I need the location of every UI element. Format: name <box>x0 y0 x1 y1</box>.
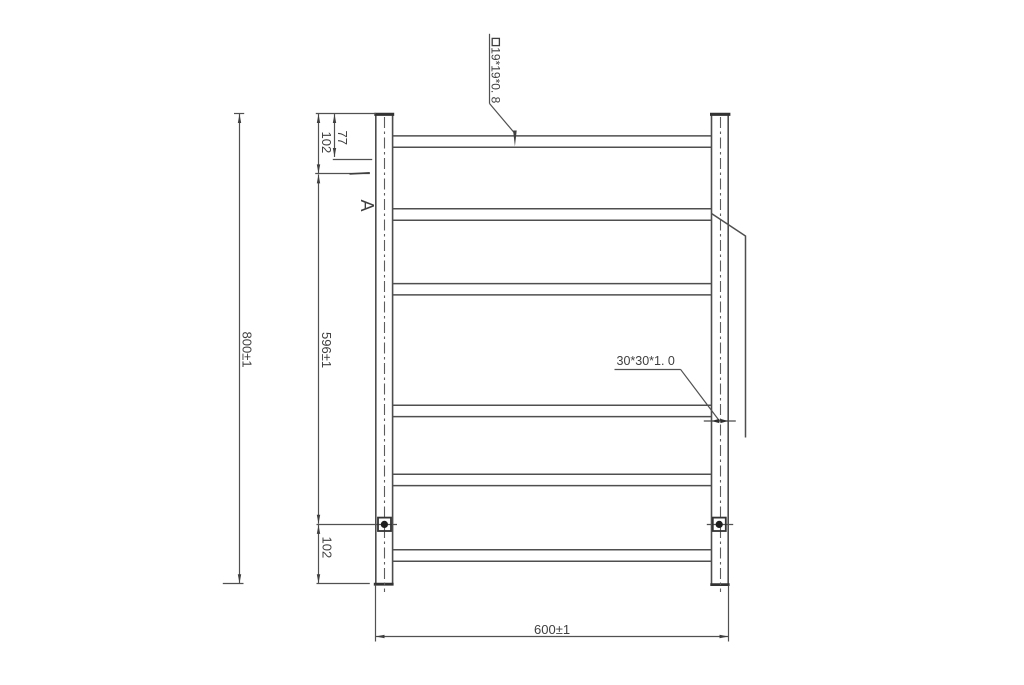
svg-text:596±1: 596±1 <box>319 332 334 368</box>
svg-text:800±1: 800±1 <box>240 332 255 368</box>
svg-text:102: 102 <box>319 132 334 154</box>
svg-text:19*19*0. 8: 19*19*0. 8 <box>488 47 502 103</box>
svg-text:77: 77 <box>335 131 350 145</box>
svg-text:30*30*1. 0: 30*30*1. 0 <box>617 354 675 368</box>
svg-text:102: 102 <box>320 537 335 559</box>
svg-text:600±1: 600±1 <box>534 622 570 637</box>
svg-text:A: A <box>357 200 377 212</box>
